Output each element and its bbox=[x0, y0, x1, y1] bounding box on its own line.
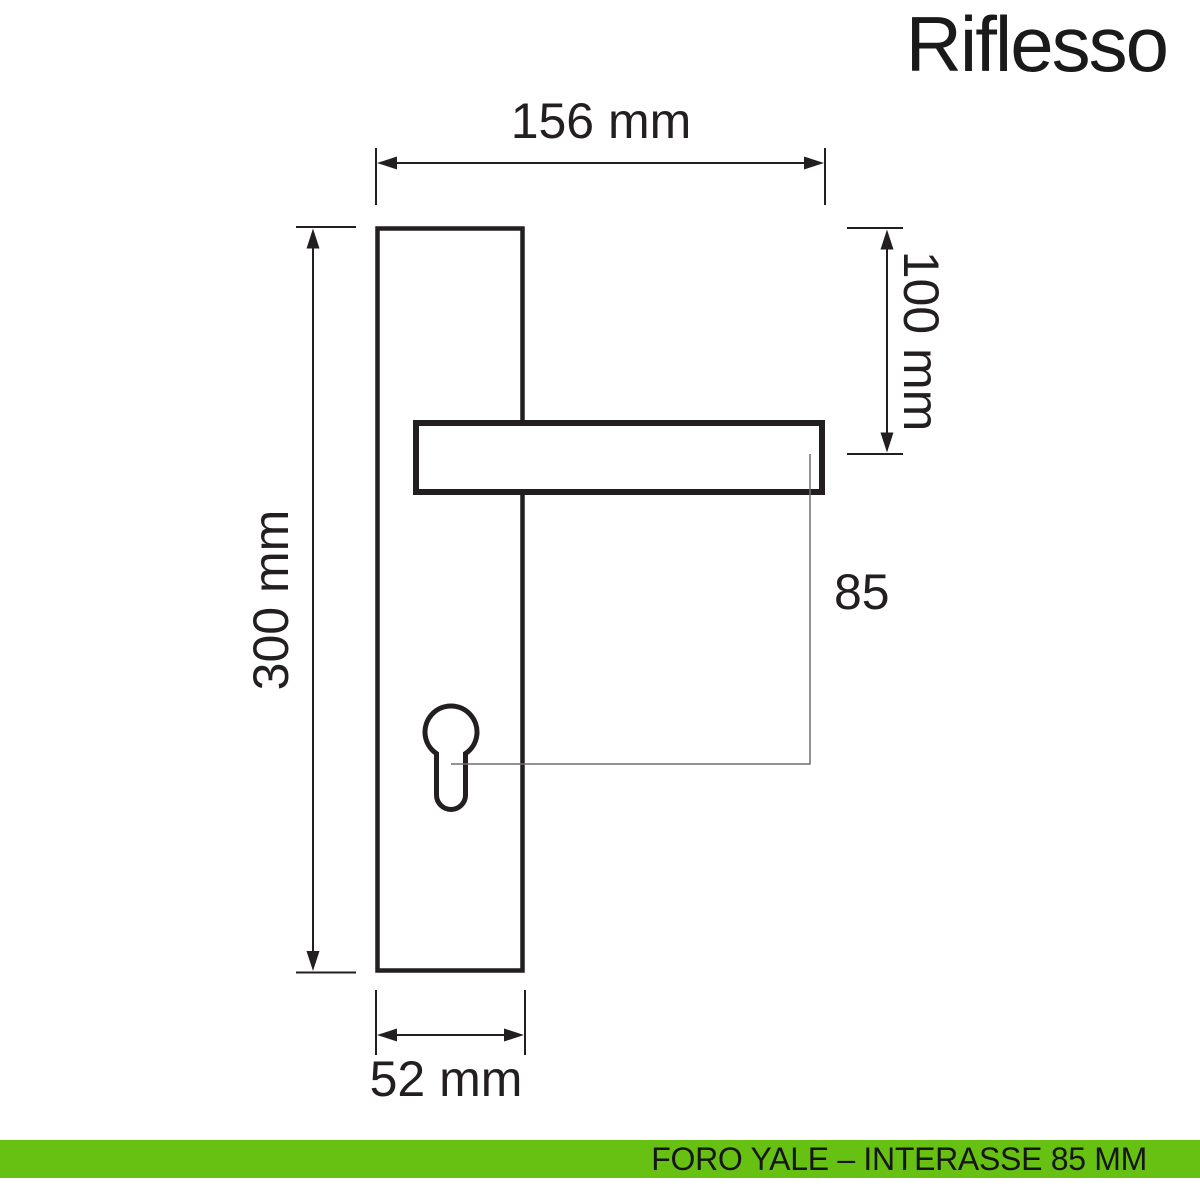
dimension-plate-height: 300 mm bbox=[243, 227, 356, 973]
arrowhead-left-icon bbox=[377, 1029, 397, 1042]
page: Riflesso 85 156 mm 300 mm bbox=[0, 0, 1200, 1200]
footer-bar: FORO YALE – INTERASSE 85 MM bbox=[0, 1140, 1200, 1178]
arrowhead-down-icon bbox=[881, 433, 894, 453]
arrowhead-up-icon bbox=[307, 229, 320, 249]
plate-height-dimension-label: 300 mm bbox=[243, 510, 299, 691]
plate-width-dimension-label: 52 mm bbox=[370, 1051, 523, 1107]
arrowhead-right-icon bbox=[504, 1029, 524, 1042]
backplate-outline bbox=[378, 229, 523, 971]
arrowhead-right-icon bbox=[804, 157, 824, 170]
arrowhead-left-icon bbox=[377, 157, 397, 170]
arrowhead-up-icon bbox=[881, 230, 894, 250]
technical-drawing: 85 156 mm 300 mm 100 mm bbox=[0, 0, 1200, 1200]
dimension-handle-offset: 100 mm bbox=[847, 228, 949, 454]
interaxis-dimension-label: 85 bbox=[834, 564, 890, 620]
footer-text: FORO YALE – INTERASSE 85 MM bbox=[651, 1141, 1147, 1177]
dimension-plate-width: 52 mm bbox=[370, 990, 525, 1107]
dimension-total-width: 156 mm bbox=[376, 93, 825, 205]
total-width-dimension-label: 156 mm bbox=[511, 93, 692, 149]
handle-offset-dimension-label: 100 mm bbox=[893, 251, 949, 432]
handle-lever-outline bbox=[416, 423, 822, 492]
arrowhead-down-icon bbox=[307, 951, 320, 971]
